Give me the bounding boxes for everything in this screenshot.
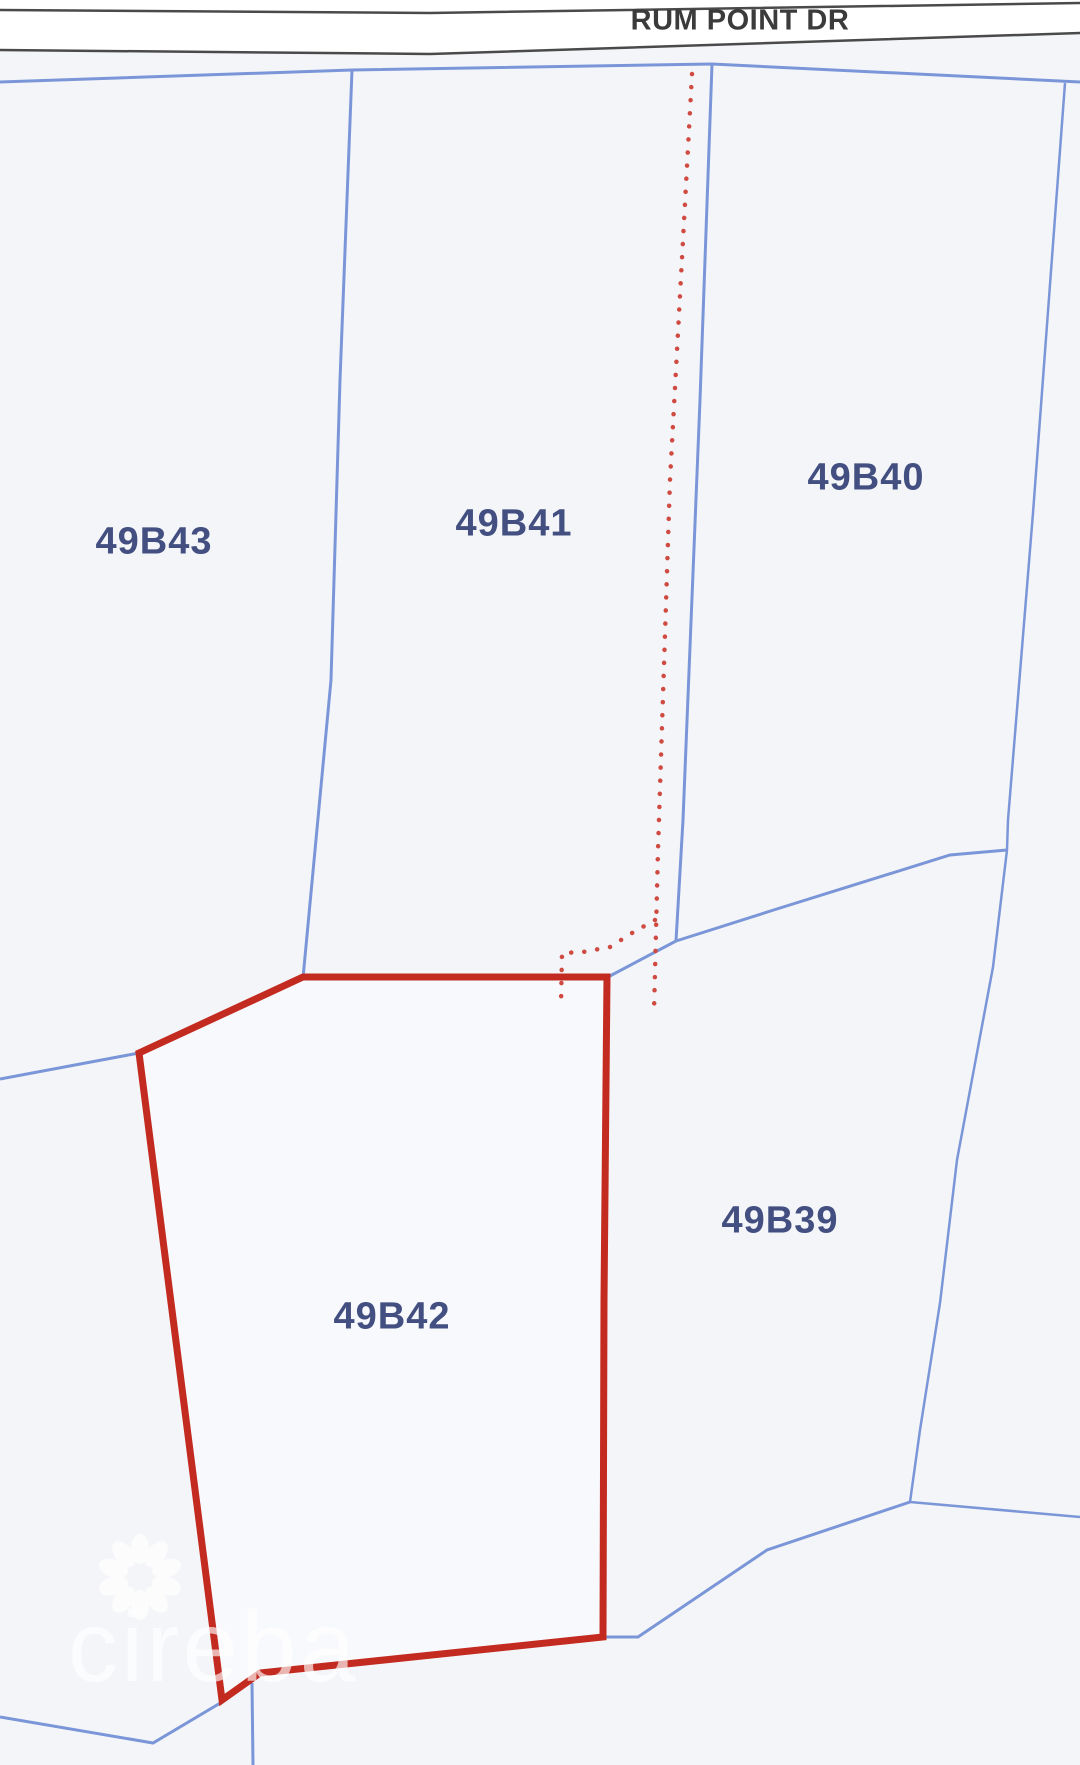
parcel-label-49b40: 49B40	[808, 457, 925, 500]
parcel-map: RUM POINT DR 49B43 49B41 49B40 49B39 49B…	[0, 0, 1080, 1765]
watermark-text: cireba	[68, 1597, 358, 1697]
parcel-label-49b39: 49B39	[722, 1200, 839, 1243]
parcel-map-canvas	[0, 0, 1080, 1765]
parcel-label-49b43: 49B43	[96, 521, 213, 564]
parcel-label-49b42: 49B42	[334, 1296, 451, 1339]
road-label: RUM POINT DR	[631, 5, 850, 38]
parcel-label-49b41: 49B41	[456, 503, 573, 546]
